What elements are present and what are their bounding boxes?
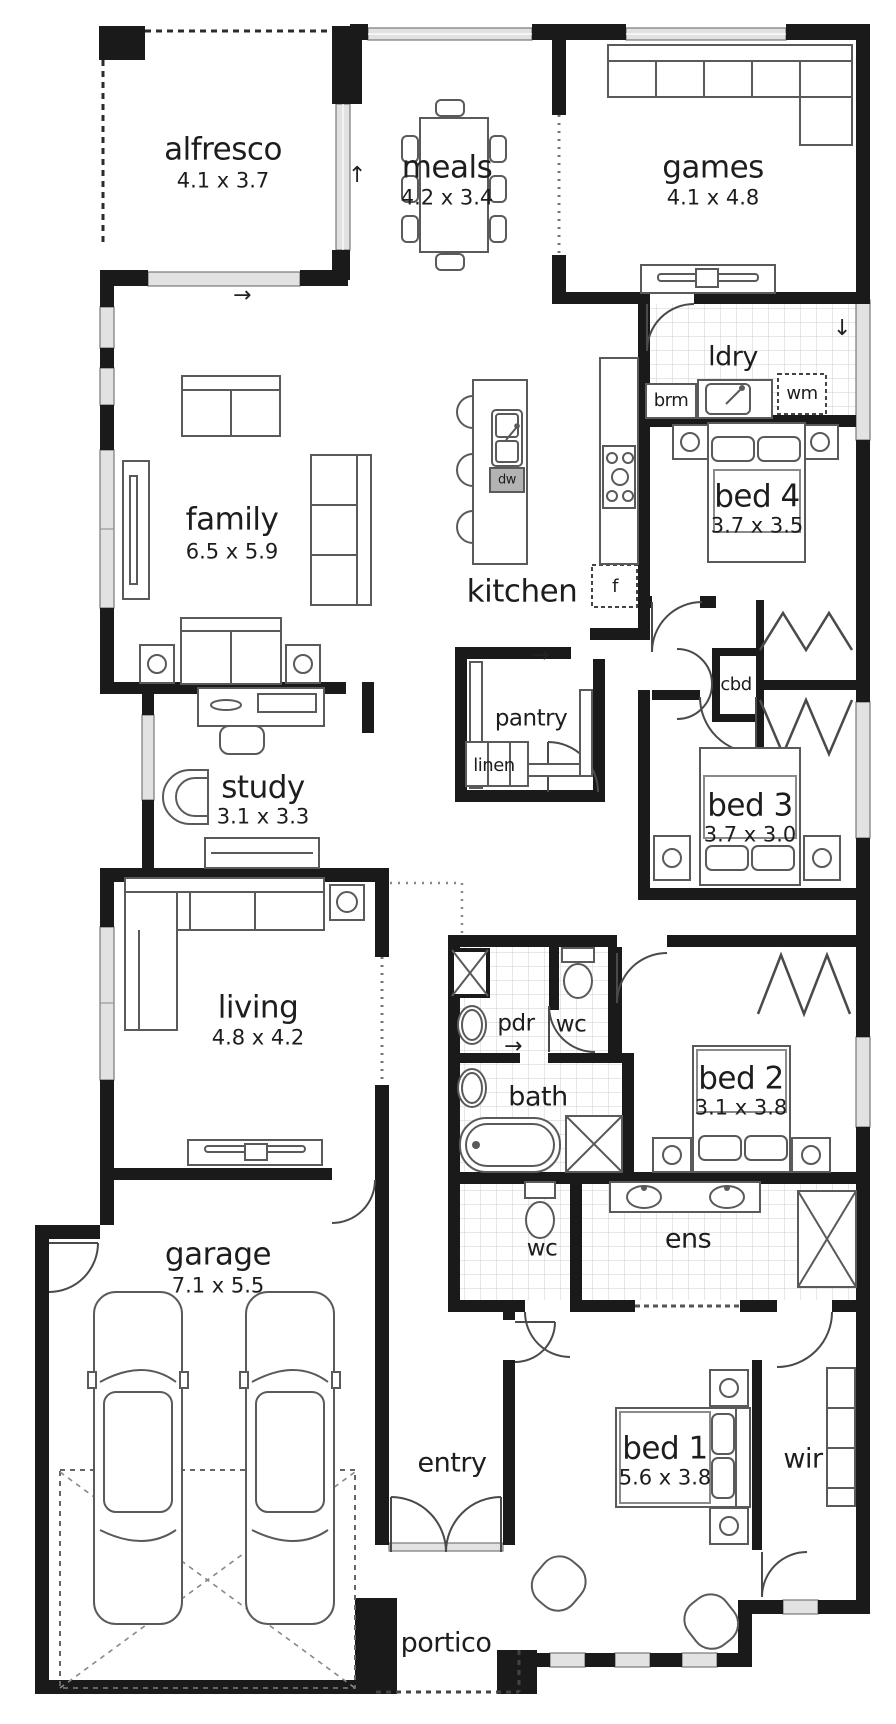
room-dims-living: 4.8 x 4.2	[212, 1028, 305, 1049]
label-broom-cupboard: brm	[654, 392, 689, 410]
room-label-bed3: bed 3	[707, 791, 793, 822]
room-label-alfresco: alfresco	[164, 135, 282, 166]
room-label-bed4: bed 4	[714, 482, 800, 513]
kitchen-island	[457, 380, 527, 564]
furniture	[88, 45, 856, 1657]
room-label-games: games	[662, 153, 764, 184]
room-dims-garage: 7.1 x 5.5	[172, 1276, 265, 1297]
door-arrow-right-alfresco-icon: →	[233, 285, 251, 307]
room-dims-study: 3.1 x 3.3	[217, 807, 310, 828]
room-label-wc: wc	[556, 1014, 586, 1037]
room-dims-bed4: 3.7 x 3.5	[711, 516, 804, 537]
room-dims-family: 6.5 x 5.9	[186, 542, 279, 563]
room-dims-alfresco: 4.1 x 3.7	[177, 171, 270, 192]
room-label-wir: wir	[783, 1446, 822, 1473]
room-label-bed1: bed 1	[622, 1434, 708, 1465]
room-label-garage: garage	[165, 1240, 271, 1271]
room-label-pantry: pantry	[495, 708, 567, 731]
room-label-kitchen: kitchen	[467, 577, 578, 608]
games-sofa	[608, 45, 852, 145]
room-label-entry: entry	[418, 1450, 487, 1477]
room-label-laundry: ldry	[708, 344, 758, 371]
door-arrow-right-pantry-icon: →	[531, 645, 549, 667]
door-arrow-down-laundry-icon: ↓	[833, 318, 851, 340]
kitchen-bench	[600, 358, 638, 564]
room-label-study: study	[221, 773, 304, 804]
room-label-cupboard: cbd	[720, 676, 751, 694]
label-fridge: f	[612, 578, 618, 596]
room-label-meals: meals	[402, 153, 493, 184]
room-label-portico: portico	[401, 1630, 492, 1657]
room-label-living: living	[218, 993, 299, 1024]
room-dims-bed2: 3.1 x 3.8	[695, 1098, 788, 1119]
door-arrow-up-icon: ↑	[348, 165, 366, 187]
room-label-bath: bath	[508, 1084, 567, 1111]
room-label-bed2: bed 2	[698, 1064, 784, 1095]
label-dishwasher: dw	[498, 474, 516, 487]
room-label-ensuite: ens	[665, 1226, 711, 1253]
floor-plan: alfresco 4.1 x 3.7 meals 4.2 x 3.4 games…	[0, 0, 896, 1724]
room-dims-meals: 4.2 x 3.4	[401, 188, 494, 209]
garage-cars	[88, 1292, 340, 1624]
label-washing-machine: wm	[786, 385, 817, 403]
room-dims-bed3: 3.7 x 3.0	[704, 825, 797, 846]
games-tv-unit	[641, 265, 775, 293]
room-label-linen: linen	[473, 757, 514, 775]
room-label-powder: pdr	[497, 1013, 534, 1036]
room-dims-games: 4.1 x 4.8	[667, 188, 760, 209]
room-dims-bed1: 5.6 x 3.8	[619, 1468, 712, 1489]
room-label-family: family	[186, 505, 279, 536]
door-arrow-right-powder-icon: →	[504, 1036, 522, 1058]
room-label-wc2: wc	[527, 1238, 557, 1261]
